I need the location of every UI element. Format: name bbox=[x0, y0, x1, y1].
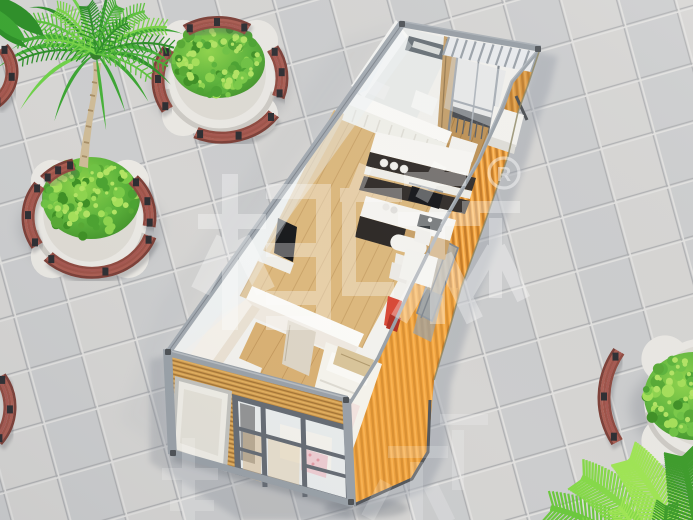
svg-text:R: R bbox=[497, 164, 512, 186]
